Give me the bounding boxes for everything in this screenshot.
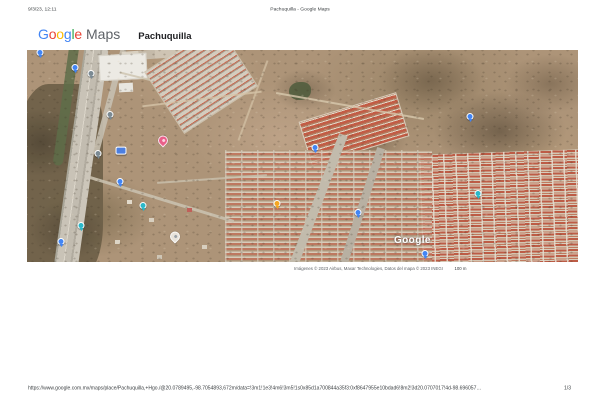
blue-poi-marker-icon <box>58 238 65 247</box>
blue-poi-marker-icon <box>422 250 429 259</box>
gray-poi-marker-icon <box>88 70 95 79</box>
print-page-indicator: 1/3 <box>564 385 571 391</box>
blue-poi-marker-icon <box>72 64 79 73</box>
markers-layer <box>27 50 578 262</box>
header-brand-row: Google Maps Pachuquilla <box>38 26 192 42</box>
google-logo-letter: o <box>56 26 64 42</box>
google-logo: Google <box>38 26 82 42</box>
map-attribution-row: Imágenes © 2023 Airbus, Maxar Technologi… <box>294 266 466 271</box>
print-document-title: Pachuquilla - Google Maps <box>135 6 465 12</box>
print-datetime: 9/3/23, 12:11 <box>28 6 57 12</box>
blue-poi-marker-icon <box>117 178 124 187</box>
satellite-map: Google <box>27 50 578 262</box>
google-maps-logo-suffix: Maps <box>86 26 120 42</box>
orange-poi-marker-icon <box>274 200 281 209</box>
blue-poi-marker-icon <box>355 209 362 218</box>
print-footer-url: https://www.google.com.mx/maps/place/Pac… <box>28 385 481 391</box>
road-shield-icon <box>116 147 127 155</box>
printed-page: 9/3/23, 12:11 Pachuquilla - Google Maps … <box>0 0 600 400</box>
gray-poi-marker-icon <box>95 150 102 159</box>
blue-poi-marker-icon <box>312 144 319 153</box>
google-logo-letter: G <box>38 26 49 42</box>
teal-poi-marker-icon <box>475 190 482 199</box>
gray-poi-marker-icon <box>107 111 114 120</box>
google-logo-letter: e <box>74 26 82 42</box>
blue-poi-marker-icon <box>467 113 474 122</box>
pink-place-pin-icon <box>158 136 168 146</box>
map-scale-label: 100 m <box>454 266 466 271</box>
page-title: Pachuquilla <box>138 31 191 42</box>
teal-poi-marker-icon <box>78 222 85 231</box>
blue-poi-marker-icon <box>37 50 44 58</box>
map-attribution: Imágenes © 2023 Airbus, Maxar Technologi… <box>294 266 443 271</box>
teal-poi-marker-icon <box>140 202 147 211</box>
white-place-pin-icon <box>170 232 180 242</box>
